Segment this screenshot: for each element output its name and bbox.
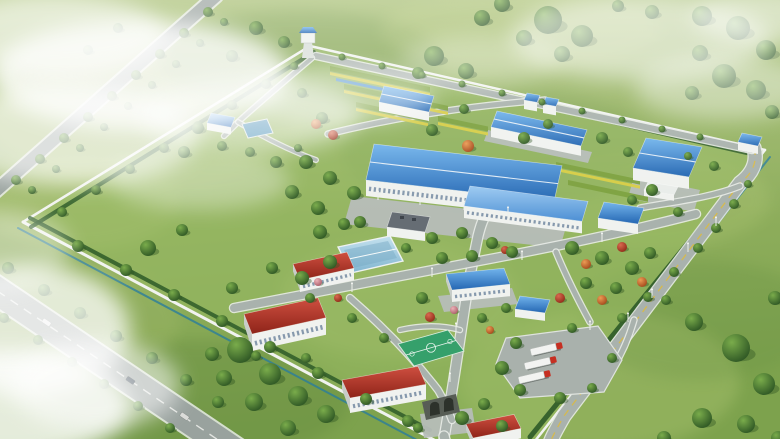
aerial-campus-rendering	[0, 0, 780, 439]
atmospheric-haze	[0, 0, 780, 220]
road-court-link	[400, 326, 460, 330]
building-mid-hut	[515, 296, 550, 321]
building-dorm-building	[446, 268, 510, 302]
scene-svg	[0, 0, 780, 439]
